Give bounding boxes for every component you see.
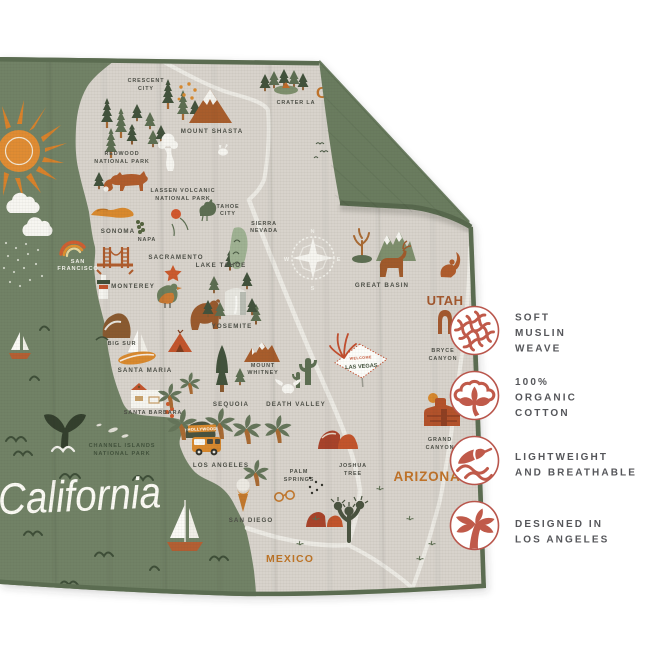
svg-text:LOS ANGELES: LOS ANGELES xyxy=(515,535,609,546)
svg-text:100%: 100% xyxy=(515,377,549,388)
svg-text:WEAVE: WEAVE xyxy=(515,343,561,354)
svg-text:COTTON: COTTON xyxy=(515,408,570,419)
svg-text:AND BREATHABLE: AND BREATHABLE xyxy=(515,467,637,478)
svg-text:MUSLIN: MUSLIN xyxy=(515,328,566,339)
svg-text:ORGANIC: ORGANIC xyxy=(515,392,577,403)
svg-text:LIGHTWEIGHT: LIGHTWEIGHT xyxy=(515,452,608,463)
svg-text:DESIGNED IN: DESIGNED IN xyxy=(515,519,603,530)
svg-text:SOFT: SOFT xyxy=(515,312,550,323)
